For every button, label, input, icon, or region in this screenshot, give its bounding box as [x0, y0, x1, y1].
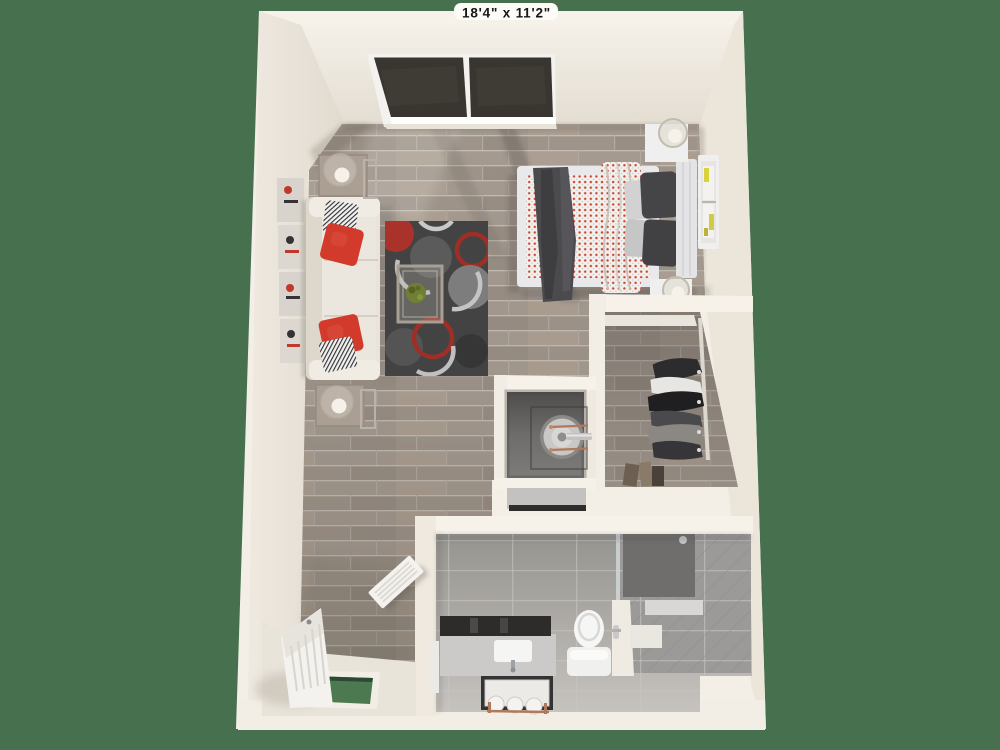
svg-text:18'4" x 11'2": 18'4" x 11'2"	[462, 5, 551, 20]
